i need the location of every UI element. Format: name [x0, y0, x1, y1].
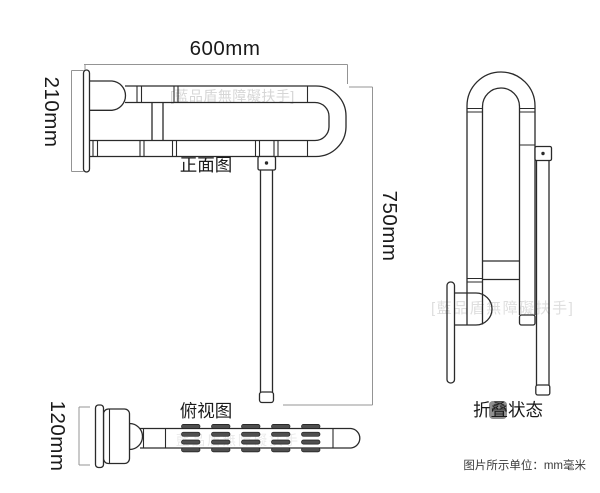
rib-group-4	[272, 424, 291, 452]
dim-line-120	[79, 407, 90, 465]
dim-label-750mm: 750mm	[377, 190, 401, 262]
folded-leg-end-cap	[536, 385, 550, 395]
folded-handle-inner	[483, 88, 520, 325]
folded-handle-joints	[467, 109, 535, 283]
unit-note: 图片所示单位：mm毫米	[430, 460, 586, 473]
front-view-label: 正面图	[166, 155, 246, 175]
front-mount-capsule	[89, 81, 125, 110]
folded-drop-leg	[537, 161, 550, 386]
front-drop-leg	[261, 170, 273, 392]
front-cross-connector	[152, 103, 163, 141]
folded-mount-capsule	[455, 293, 493, 325]
rib-group-2	[212, 424, 231, 452]
dim-label-210mm: 210mm	[39, 76, 63, 148]
folded-view-label: 折叠状态	[463, 400, 553, 420]
dim-label-600mm: 600mm	[185, 37, 265, 61]
dim-line-600	[84, 65, 348, 85]
front-handle-inner	[89, 103, 329, 141]
dim-line-750	[283, 87, 373, 405]
top-mount-block	[104, 409, 130, 464]
folded-tube-end-cap	[520, 315, 536, 325]
front-view-dimension-lines	[72, 65, 373, 406]
rib-group-5	[302, 424, 321, 452]
top-mount-socket	[130, 424, 143, 450]
front-screw-icon	[265, 161, 268, 164]
folded-handle-outer	[467, 72, 535, 325]
folded-view-drawing	[447, 72, 552, 395]
top-view-label: 俯视图	[166, 401, 246, 421]
dim-line-210	[72, 71, 84, 172]
top-tube-joints	[144, 429, 334, 449]
front-top-tube-joints	[137, 86, 308, 103]
front-view-drawing	[84, 70, 347, 403]
top-tube	[140, 429, 360, 449]
folded-wall-plate	[447, 282, 455, 383]
rib-group-3	[242, 424, 261, 452]
diagram-canvas: [藍品盾無障礙扶手] 藍品盾無障礙扶手 [藍品盾無障礙扶手]	[0, 0, 600, 493]
folded-screw-icon	[541, 152, 544, 155]
front-wall-plate	[84, 70, 90, 172]
rib-group-1	[182, 424, 201, 452]
top-wall-plate	[96, 405, 104, 468]
front-leg-end-cap	[260, 392, 274, 403]
folded-cross-connector	[483, 261, 520, 280]
dim-label-120mm: 120mm	[45, 400, 69, 472]
